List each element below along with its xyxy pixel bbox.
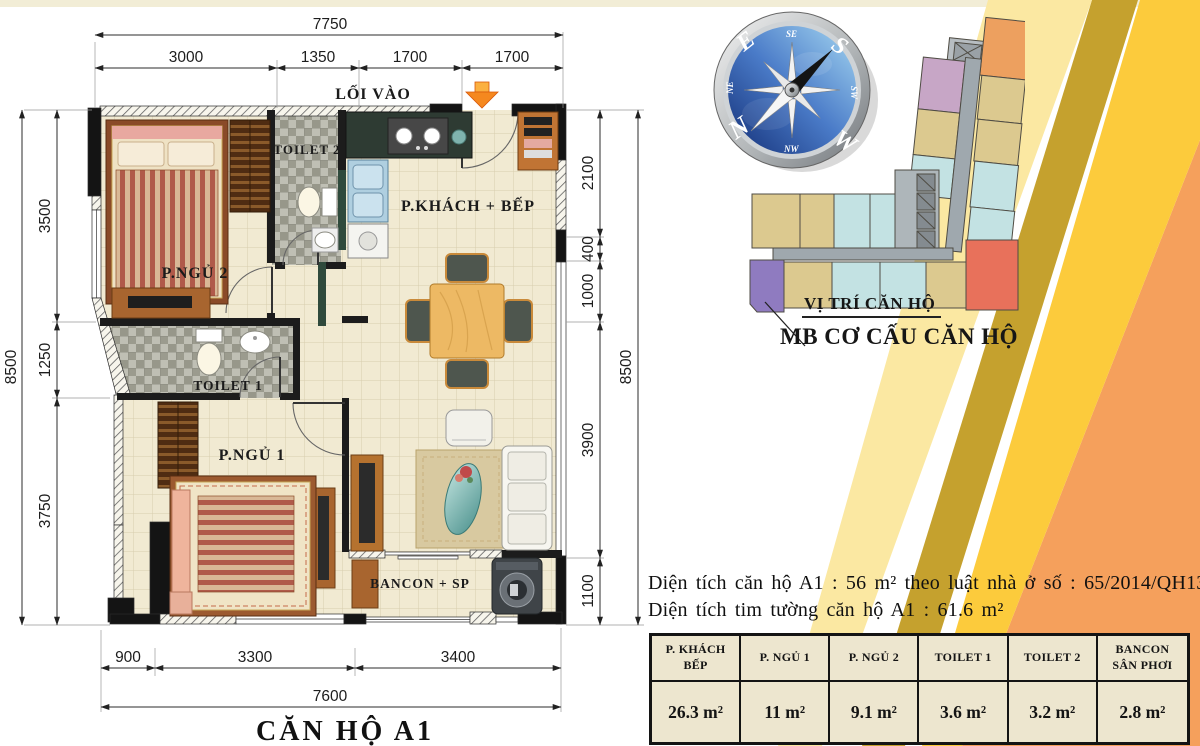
- left-column: [150, 522, 172, 614]
- site-corridor: [773, 248, 953, 260]
- dim-right-seg: 400: [580, 236, 597, 262]
- area-table-header: BANCON SÂN PHƠI: [1098, 636, 1187, 682]
- dim-left-seg: 1250: [37, 342, 54, 377]
- dim-bottom-total: 7600: [313, 688, 348, 705]
- dim-top-seg: 1350: [301, 49, 336, 66]
- entrance-label: LỐI VÀO: [335, 83, 411, 103]
- site-unit: [834, 194, 870, 248]
- entrance-arrow-icon: [466, 82, 498, 108]
- entrance: LỐI VÀO: [335, 82, 498, 108]
- dim-left-total: 8500: [3, 349, 20, 384]
- area-table-header: P. NGỦ 2: [830, 636, 919, 682]
- site-unit: [966, 240, 1018, 310]
- plan-title: CĂN HỘ A1: [256, 716, 434, 746]
- page: P.NGỦ 2 TOILET 2 P.KHÁCH + BẾP TOILET 1 …: [0, 0, 1200, 746]
- balcony-label: BANCON + SP: [370, 576, 470, 591]
- dim-top-seg: 1700: [393, 49, 428, 66]
- dim-top-seg: 3000: [169, 49, 204, 66]
- dim-left-seg: 3750: [37, 493, 54, 528]
- area-table-header: TOILET 2: [1009, 636, 1098, 682]
- site-unit: [800, 194, 834, 248]
- dim-right-total: 8500: [618, 349, 635, 384]
- area-table-value: 2.8 m²: [1098, 682, 1187, 742]
- dim-right-seg: 1000: [580, 273, 597, 308]
- dim-right-seg: 3900: [580, 422, 597, 457]
- dim-top-seg: 1700: [495, 49, 530, 66]
- living-label: P.KHÁCH + BẾP: [401, 196, 535, 215]
- area-table: P. KHÁCH BẾP P. NGỦ 1 P. NGỦ 2 TOILET 1 …: [649, 633, 1190, 745]
- area-table-value: 3.2 m²: [1009, 682, 1098, 742]
- dim-right-seg: 1100: [580, 574, 597, 608]
- area-info-line2: Diện tích tim tường căn hộ A1 : 61.6 m²: [648, 597, 1200, 624]
- area-table-header: P. NGỦ 1: [741, 636, 830, 682]
- dim-bottom-seg: 3400: [441, 649, 476, 666]
- armchair: [446, 410, 492, 446]
- area-info-line1: Diện tích căn hộ A1 : 56 m² theo luật nh…: [648, 570, 1200, 597]
- dim-bottom-seg: 900: [115, 649, 141, 666]
- site-caption: MB CƠ CẤU CĂN HỘ: [780, 324, 1018, 350]
- site-pointer-label: VỊ TRÍ CĂN HỘ: [802, 294, 941, 318]
- site-unit: [870, 194, 898, 248]
- site-unit: [752, 194, 800, 248]
- area-table-header: TOILET 1: [919, 636, 1008, 682]
- area-table-value: 3.6 m²: [919, 682, 1008, 742]
- bedroom1-label: P.NGỦ 1: [219, 445, 286, 464]
- compass-ne: NE: [725, 81, 735, 95]
- bedroom2-label: P.NGỦ 2: [162, 263, 229, 282]
- area-table-header: P. KHÁCH BẾP: [652, 636, 741, 682]
- area-table-value: 26.3 m²: [652, 682, 741, 742]
- floor-plan: P.NGỦ 2 TOILET 2 P.KHÁCH + BẾP TOILET 1 …: [0, 0, 660, 746]
- area-info: Diện tích căn hộ A1 : 56 m² theo luật nh…: [648, 570, 1200, 624]
- area-table-value: 9.1 m²: [830, 682, 919, 742]
- dim-left-seg: 3500: [37, 198, 54, 233]
- dim-bottom-seg: 3300: [238, 649, 273, 666]
- dim-top-total: 7750: [313, 16, 348, 33]
- toilet2-label: TOILET 2: [273, 142, 340, 157]
- dim-right-seg: 2100: [580, 155, 597, 190]
- toilet1-label: TOILET 1: [193, 378, 262, 393]
- area-table-value: 11 m²: [741, 682, 830, 742]
